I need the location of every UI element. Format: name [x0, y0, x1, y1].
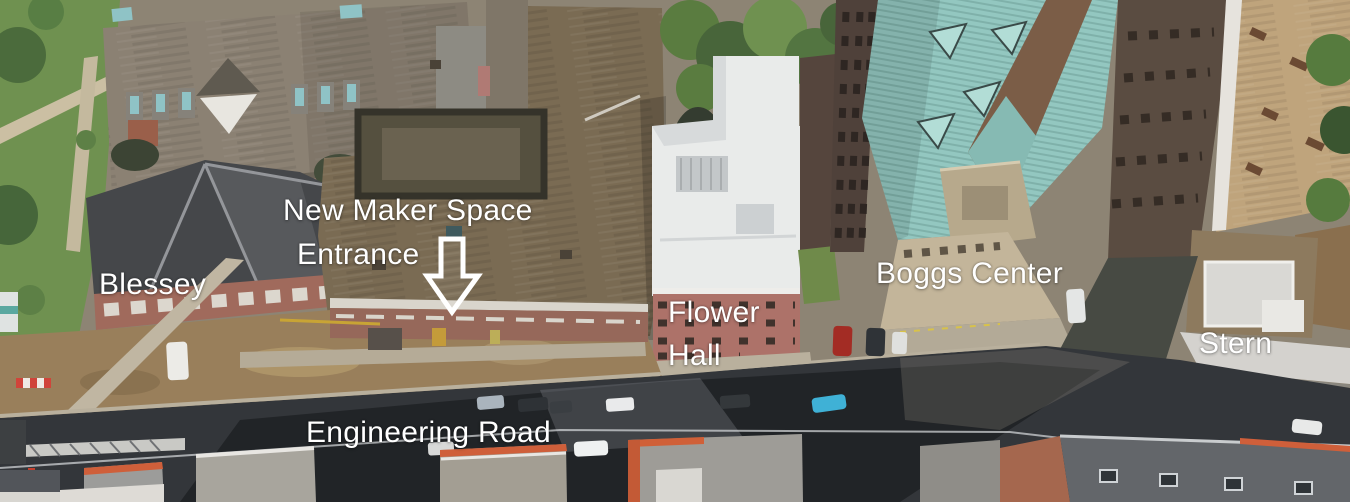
label-maker-space-line2: Entrance	[297, 238, 419, 271]
label-flower-line1: Flower	[668, 296, 760, 329]
traffic-barrier	[16, 378, 51, 388]
aerial-scene	[0, 0, 1350, 502]
label-flower-line2: Hall	[668, 339, 721, 372]
label-engineering-road: Engineering Road	[306, 416, 551, 449]
label-blessey: Blessey	[99, 268, 206, 301]
label-maker-space-line1: New Maker Space	[283, 194, 533, 227]
campus-aerial-map: New Maker Space Entrance Blessey Flower …	[0, 0, 1350, 502]
label-boggs-center: Boggs Center	[876, 257, 1063, 290]
label-stern: Stern	[1199, 327, 1272, 360]
